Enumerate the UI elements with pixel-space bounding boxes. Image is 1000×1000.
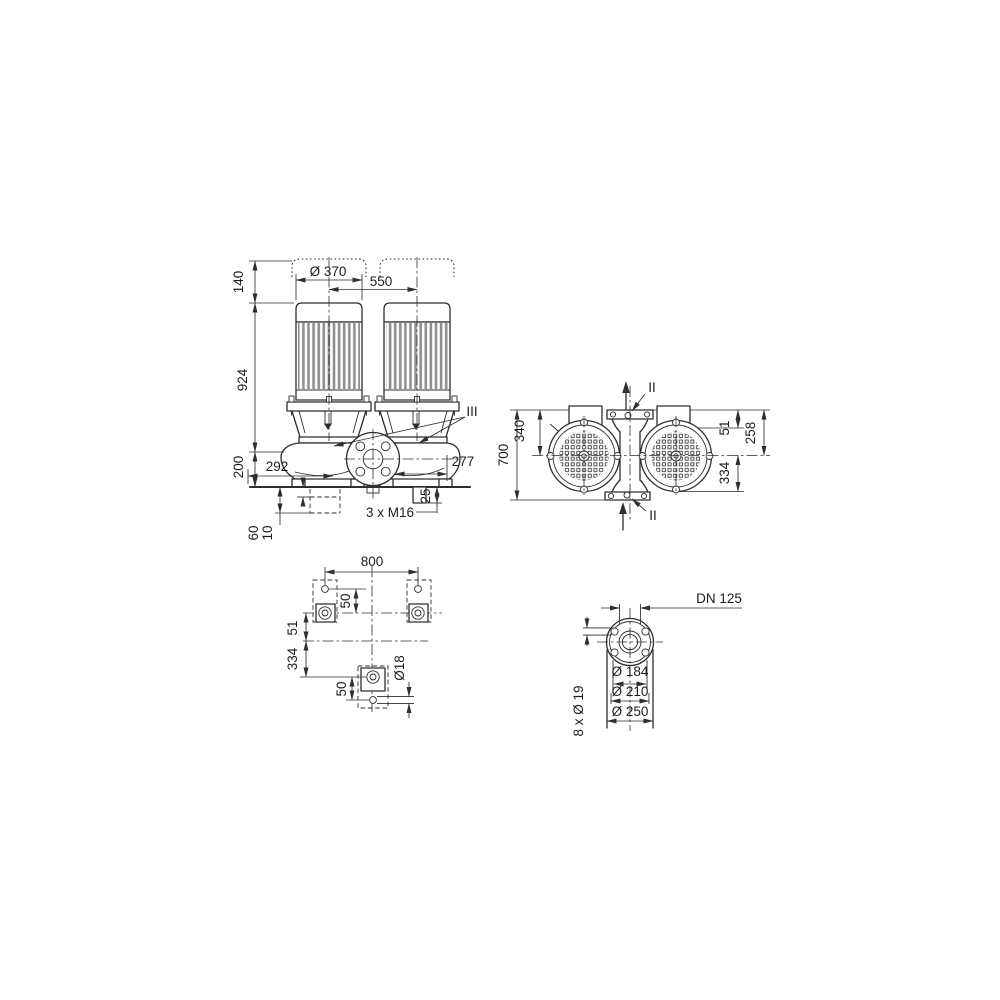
dim-offset-right: 277 — [452, 454, 475, 469]
dim-nominal-diameter: DN 125 — [696, 591, 742, 606]
dim-motor-diameter: Ø 370 — [310, 264, 347, 279]
front-view: 140 924 200 Ø 370 550 292 277 25 3 x M16… — [231, 257, 478, 541]
top-view: II II 700 340 51 258 334 — [496, 380, 770, 530]
foundation-pad-top-left — [313, 580, 337, 622]
dim-hole-offset-bottom: 50 — [334, 681, 349, 696]
dim-pilot-diameter: Ø 184 — [612, 664, 649, 679]
flow-arrow-up-top-icon — [622, 381, 630, 409]
flange-detail-view: DN 125 8 x Ø 19 Ø 184 Ø 210 Ø 250 — [571, 591, 742, 737]
foundation-plan-view: 800 50 51 334 50 Ø18 — [285, 554, 442, 718]
dim-clearance: 140 — [231, 271, 246, 294]
dim-row-spacing: 334 — [285, 647, 300, 670]
foundation-pad-bottom — [358, 666, 388, 708]
dim-foundation-depth: 60 — [246, 525, 261, 540]
dim-center-to-edge: 334 — [717, 461, 732, 484]
pump-dimension-drawing-page: 140 924 200 Ø 370 550 292 277 25 3 x M16… — [0, 0, 1000, 1000]
flow-arrow-up-bottom-icon — [619, 502, 627, 530]
dim-bolt-circle-diameter: Ø 210 — [612, 684, 649, 699]
dim-height-base: 200 — [231, 456, 246, 479]
pump-foot — [439, 479, 452, 487]
dim-stud-projection: 25 — [418, 488, 433, 503]
dim-outer-diameter: Ø 250 — [612, 704, 649, 719]
section-marker-ii-top: II — [648, 380, 656, 395]
dim-box-offset: 51 — [717, 420, 732, 435]
section-marker-ii-bottom: II — [649, 508, 657, 523]
dim-center-offset: 51 — [285, 620, 300, 635]
dim-depth-total: 700 — [496, 444, 511, 467]
dim-hole-diameter: Ø18 — [392, 655, 407, 681]
section-marker-iii: III — [466, 404, 477, 419]
dim-port-to-center: 340 — [512, 420, 527, 443]
technical-drawing: 140 924 200 Ø 370 550 292 277 25 3 x M16… — [0, 0, 1000, 1000]
dim-offset-left: 292 — [266, 459, 289, 474]
foundation-pocket — [310, 489, 340, 513]
foundation-pad-top-right — [407, 580, 431, 622]
dim-motor-spacing: 550 — [370, 274, 393, 289]
dim-height-total: 924 — [235, 368, 250, 391]
dim-hole-offset-top: 50 — [338, 593, 353, 608]
dim-center-to-face: 258 — [743, 422, 758, 445]
label-studs: 3 x M16 — [366, 505, 414, 520]
dim-grout-thickness: 10 — [260, 525, 275, 540]
dim-bolt-holes: 8 x Ø 19 — [571, 685, 586, 736]
dim-bolt-spacing: 800 — [361, 554, 384, 569]
